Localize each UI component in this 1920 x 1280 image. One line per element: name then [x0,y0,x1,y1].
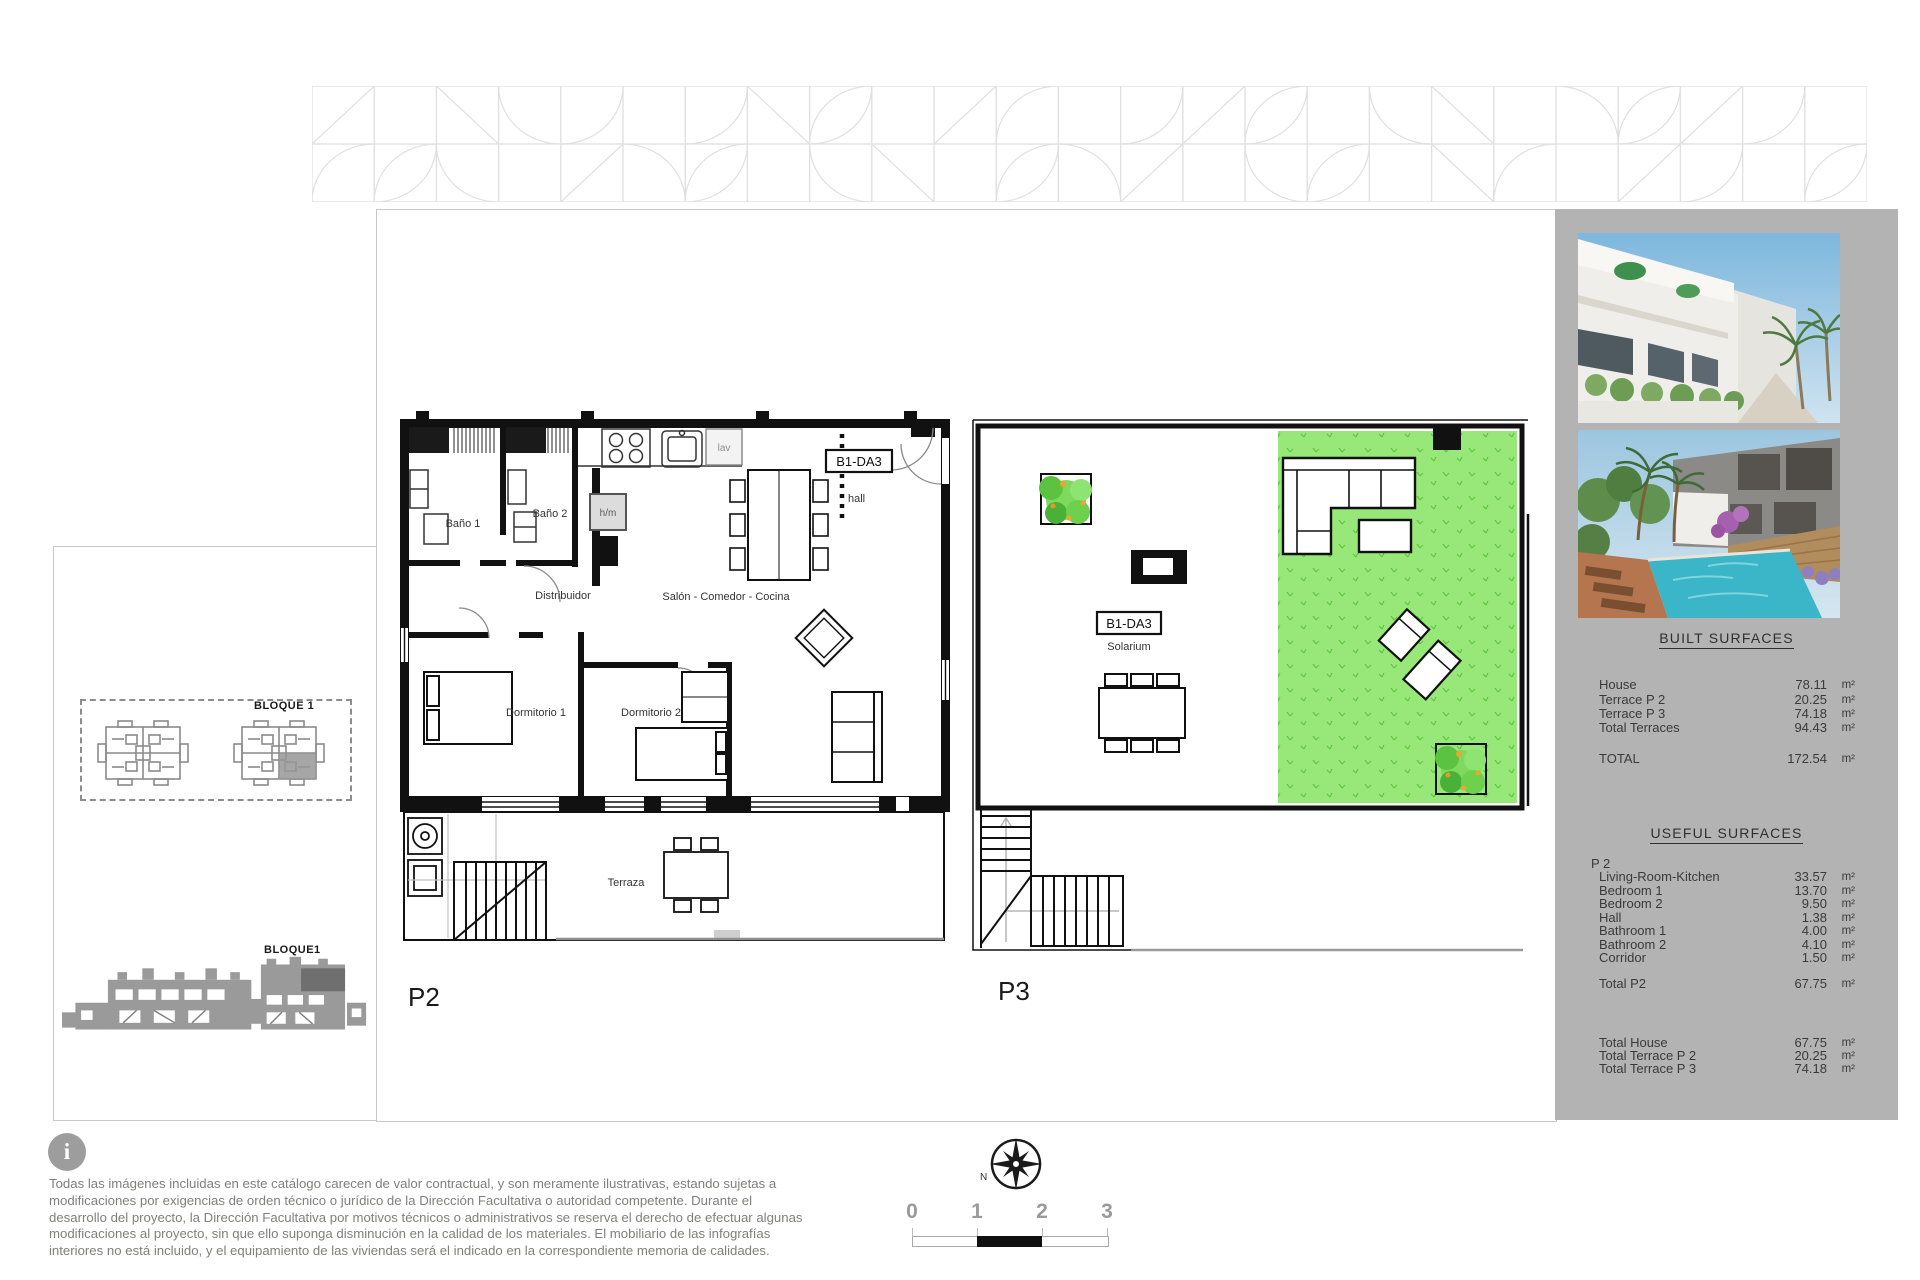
p2-bed2-label: Dormitorio 2 [621,707,681,719]
useful-total-row: Total P267.75m² [1599,977,1855,991]
render-photo-pool [1578,430,1840,618]
tree-icon [1435,744,1486,794]
p3-unit-code: B1-DA3 [1106,616,1152,631]
floor-plan-p2: lav h/m B1-DA3 hall [396,410,966,1020]
useful-row: Living-Room-Kitchen33.57m² [1599,870,1855,884]
scale-tick-2: 2 [1022,1200,1062,1224]
useful-surfaces-title: USEFUL SURFACES [1555,825,1898,841]
p2-bath1-label: Baño 1 [446,518,481,530]
summary-row: Total Terrace P 374.18m² [1599,1062,1855,1076]
p2-living-label: Salón - Comedor - Cocina [662,591,790,603]
built-surfaces-title: BUILT SURFACES [1555,630,1898,646]
p2-plan-name: P2 [408,982,440,1012]
built-row: Total Terraces94.43m² [1599,721,1855,735]
p2-hall-label: hall [848,493,865,505]
p2-lav-label: lav [718,443,731,454]
disclaimer-text: Todas las imágenes incluidas en este cat… [49,1176,807,1260]
p2-distributor-label: Distribuidor [535,590,591,602]
p2-hm-label: h/m [600,508,617,519]
p2-bed1-label: Dormitorio 1 [506,707,566,719]
built-row: Terrace P 220.25m² [1599,693,1855,707]
useful-row: Bathroom 14.00m² [1599,924,1855,938]
useful-row: Corridor1.50m² [1599,951,1855,965]
decorative-frieze [312,86,1867,202]
useful-row: Bedroom 29.50m² [1599,897,1855,911]
built-row: House78.11m² [1599,678,1855,692]
info-icon: i [48,1133,86,1171]
scale-tick-3: 3 [1087,1200,1127,1224]
compass-north-label: N [980,1172,987,1183]
p2-unit-code: B1-DA3 [836,454,882,469]
built-row: Terrace P 374.18m² [1599,707,1855,721]
surfaces-panel: BUILT SURFACES House78.11m² Terrace P 22… [1555,209,1898,1120]
site-key-frame: BLOQUE 1 [53,546,377,1121]
scale-tick-1: 1 [957,1200,997,1224]
compass-icon: N [972,1130,1052,1202]
p3-plan-name: P3 [998,976,1030,1006]
site-elevation [62,955,368,1039]
render-photo-exterior [1578,233,1840,423]
highlighted-unit [279,753,316,779]
scale-tick-0: 0 [892,1200,932,1224]
p2-terrace-label: Terraza [608,877,646,889]
tree-icon [1039,474,1092,524]
floor-plan-p3: B1-DA3 Solarium [971,418,1537,1028]
site-cluster-plans [94,711,334,797]
built-total-row: TOTAL172.54m² [1599,752,1855,766]
p3-solarium-label: Solarium [1107,641,1150,653]
catalog-page: BLOQUE 1 [0,0,1920,1280]
scale-bar-segment [977,1236,1042,1247]
p2-bath2-label: Baño 2 [533,508,568,520]
